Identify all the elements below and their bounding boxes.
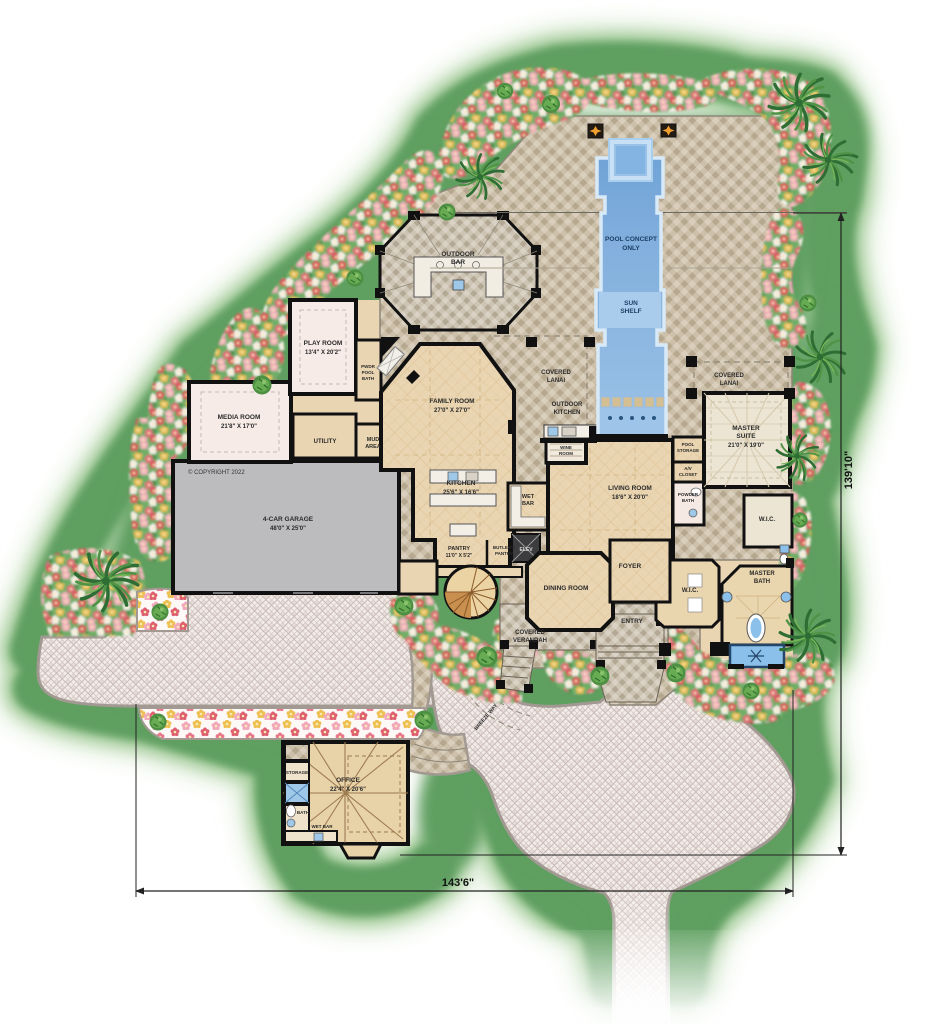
svg-text:ELEV: ELEV	[519, 547, 533, 553]
svg-text:4-CAR GARAGE: 4-CAR GARAGE	[263, 516, 314, 523]
svg-text:48'0" X 25'0": 48'0" X 25'0"	[270, 526, 306, 532]
svg-text:POOL: POOL	[682, 442, 695, 447]
svg-text:POOL CONCEPT: POOL CONCEPT	[605, 236, 657, 243]
svg-text:PANTRY: PANTRY	[495, 551, 513, 556]
svg-text:STORAGE: STORAGE	[286, 770, 308, 775]
svg-text:WET BAR: WET BAR	[312, 824, 334, 829]
svg-text:BATH: BATH	[754, 579, 770, 585]
svg-text:OUTDOOR: OUTDOOR	[441, 251, 475, 258]
svg-text:FOYER: FOYER	[619, 563, 642, 570]
svg-text:LIVING ROOM: LIVING ROOM	[608, 485, 652, 492]
svg-text:SHELF: SHELF	[620, 308, 641, 315]
svg-text:MASTER: MASTER	[732, 425, 760, 432]
svg-text:VERANDAH: VERANDAH	[513, 638, 547, 644]
svg-text:DINING ROOM: DINING ROOM	[544, 585, 589, 592]
svg-text:COVERED: COVERED	[714, 373, 744, 379]
svg-text:POWDER: POWDER	[678, 492, 699, 497]
svg-text:STORAGE: STORAGE	[677, 448, 699, 453]
svg-text:KITCHEN: KITCHEN	[447, 480, 476, 487]
svg-text:SUN: SUN	[624, 300, 638, 307]
svg-text:PWDR: PWDR	[361, 364, 375, 369]
svg-text:AREA: AREA	[365, 444, 381, 450]
svg-text:18'6" X 20'0": 18'6" X 20'0"	[612, 495, 648, 501]
svg-text:LANAI: LANAI	[547, 378, 566, 384]
svg-text:W.I.C.: W.I.C.	[682, 588, 699, 594]
svg-text:MEDIA ROOM: MEDIA ROOM	[218, 414, 261, 421]
svg-text:22'4" X 20'6": 22'4" X 20'6"	[330, 787, 366, 793]
svg-text:WINE: WINE	[560, 445, 572, 450]
svg-text:BATH: BATH	[362, 376, 374, 381]
svg-text:139'10": 139'10"	[843, 451, 855, 489]
svg-text:ENTRY: ENTRY	[621, 618, 643, 625]
svg-text:ONLY: ONLY	[622, 245, 640, 252]
svg-text:ROOM: ROOM	[559, 451, 573, 456]
svg-text:27'0" X 27'0": 27'0" X 27'0"	[434, 408, 470, 414]
svg-text:MUD: MUD	[367, 437, 380, 443]
svg-text:W.I.C.: W.I.C.	[759, 517, 776, 523]
svg-text:COVERED: COVERED	[541, 370, 571, 376]
svg-text:KITCHEN: KITCHEN	[554, 410, 581, 416]
svg-text:LANAI: LANAI	[720, 381, 739, 387]
svg-text:PLAY ROOM: PLAY ROOM	[304, 340, 343, 347]
svg-text:© COPYRIGHT 2022: © COPYRIGHT 2022	[188, 469, 245, 476]
svg-text:UTILITY: UTILITY	[314, 439, 337, 445]
svg-text:21'8" X 17'0": 21'8" X 17'0"	[221, 424, 257, 430]
svg-text:BAR: BAR	[522, 501, 534, 507]
svg-text:PANTRY: PANTRY	[448, 546, 470, 552]
svg-text:CLOSET: CLOSET	[679, 472, 698, 477]
svg-text:WET: WET	[522, 494, 535, 500]
svg-text:21'0" X 19'0": 21'0" X 19'0"	[728, 443, 764, 449]
svg-text:11'0" X 5'2": 11'0" X 5'2"	[446, 553, 473, 559]
svg-text:BATH: BATH	[682, 498, 694, 503]
svg-text:13'4" X 20'2": 13'4" X 20'2"	[305, 350, 341, 356]
svg-text:BAR: BAR	[451, 259, 465, 266]
svg-text:POOL: POOL	[362, 370, 375, 375]
svg-text:A/V: A/V	[684, 466, 692, 471]
svg-text:SUITE: SUITE	[736, 433, 756, 440]
svg-text:25'6" X 16'6": 25'6" X 16'6"	[443, 490, 479, 496]
svg-text:OUTDOOR: OUTDOOR	[552, 402, 583, 408]
svg-text:BUTLER'S: BUTLER'S	[493, 545, 515, 550]
svg-text:143'6": 143'6"	[442, 877, 474, 889]
svg-text:MASTER: MASTER	[749, 571, 775, 577]
svg-text:FAMILY ROOM: FAMILY ROOM	[429, 398, 474, 405]
svg-text:OFFICE: OFFICE	[336, 777, 360, 784]
svg-text:BATH: BATH	[297, 810, 309, 815]
svg-text:COVERED: COVERED	[515, 630, 545, 636]
